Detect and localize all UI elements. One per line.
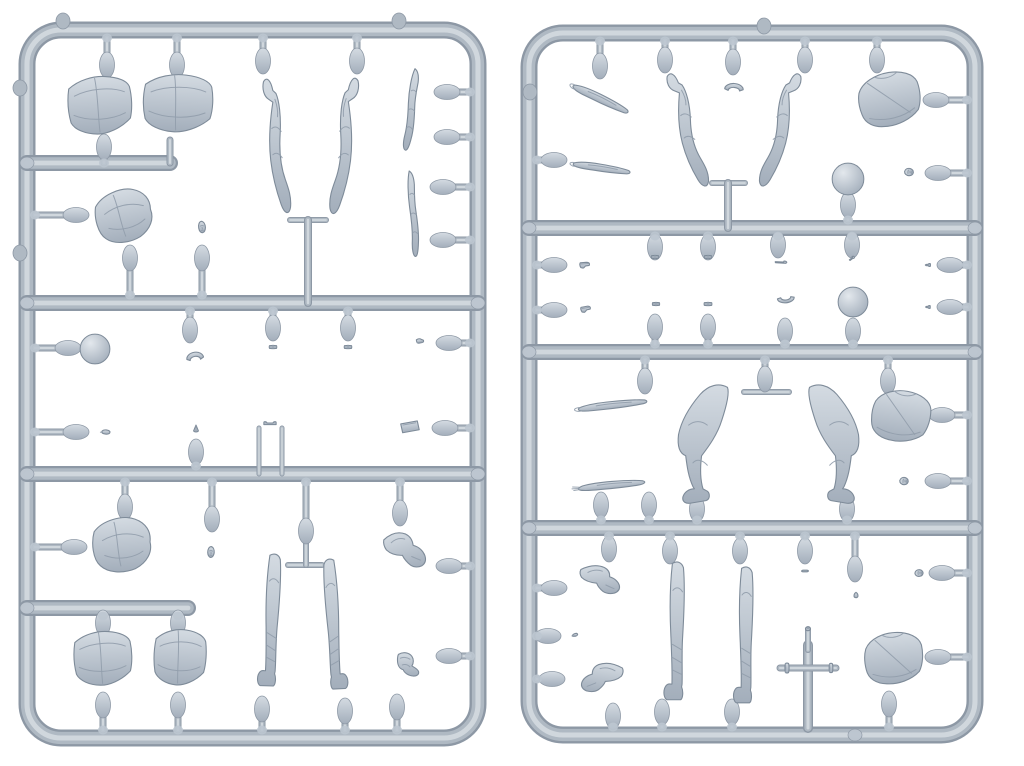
part-raised-leg-c — [666, 71, 709, 189]
part-pouch-c — [651, 255, 658, 258]
part-pouch-e — [652, 302, 659, 305]
part-map-case — [401, 421, 420, 433]
part-tent-peg — [194, 425, 199, 432]
part-pouch-d — [704, 255, 711, 258]
part-collar-crescent — [186, 351, 204, 361]
mold-tab — [757, 18, 771, 34]
part-head-e — [915, 570, 923, 577]
part-bent-arm-a — [382, 527, 427, 574]
part-tunic-torso-a — [91, 185, 157, 248]
mold-tab — [392, 13, 406, 29]
part-puttee-roll-b — [407, 171, 420, 257]
part-kneeling-leg-b — [809, 385, 859, 503]
part-pouch-f — [704, 302, 712, 305]
part-holster-b — [581, 306, 591, 313]
mold-tab — [13, 80, 27, 96]
part-greatcoat-torso — [91, 516, 152, 574]
part-chopping-arm — [568, 81, 630, 115]
part-tunic-torso-d — [862, 630, 925, 686]
part-standing-leg-b — [323, 558, 348, 689]
part-raised-leg-a — [263, 79, 291, 212]
part-toggle — [802, 570, 809, 572]
part-jacket-half-a — [67, 75, 133, 136]
part-ammo-pouch-a — [269, 345, 277, 348]
part-standing-leg-a — [257, 554, 281, 687]
part-reaching-arm — [570, 160, 631, 175]
part-bent-arm-b — [580, 564, 621, 596]
part-pick-hammer — [775, 260, 787, 264]
part-standing-leg-c — [664, 562, 684, 700]
part-helmet-dome — [80, 334, 110, 364]
part-finial-a — [925, 264, 930, 267]
mold-tab — [56, 13, 70, 29]
part-gaiter-boot — [397, 653, 418, 676]
part-tunic-torso-c — [869, 387, 934, 445]
part-bent-arm-c — [581, 660, 624, 696]
part-side-cap — [572, 633, 577, 636]
sprues-illustration — [0, 0, 1024, 766]
part-collar-horseshoe — [725, 83, 744, 91]
left-sprue — [13, 13, 485, 738]
mold-tab — [13, 245, 27, 261]
part-head-ball-b — [838, 287, 868, 317]
part-open-hand-arm — [572, 478, 645, 493]
part-jacket-half-c — [73, 631, 133, 687]
part-jacket-half-b — [142, 73, 213, 133]
part-head-c — [904, 168, 914, 177]
part-jacket-half-d — [153, 628, 208, 686]
part-tunic-torso-b — [854, 67, 926, 131]
part-finial-b — [926, 306, 931, 309]
part-wheel-b — [829, 663, 833, 672]
part-raised-leg-d — [759, 71, 802, 189]
part-standing-leg-d — [734, 567, 753, 703]
left-sprue-connectors — [20, 34, 485, 735]
part-head-ball-a — [832, 163, 864, 195]
part-ammo-pouch-b — [344, 345, 352, 348]
part-bracket-clamp — [264, 422, 276, 425]
part-head-b — [207, 546, 214, 557]
part-holster-a — [580, 262, 590, 268]
part-wheel-a — [785, 663, 789, 673]
right-sprue-parts — [568, 67, 933, 703]
part-head-a — [198, 221, 206, 233]
part-canteen — [854, 592, 858, 597]
part-puttee-roll-a — [402, 68, 420, 150]
right-sprue — [522, 18, 982, 741]
part-rolled-item — [100, 430, 110, 434]
mold-tab — [523, 84, 537, 100]
photo-canvas — [0, 0, 1024, 766]
part-raised-leg-b — [330, 78, 359, 213]
part-collar-u — [777, 296, 794, 303]
part-sleeve-arm — [574, 397, 647, 413]
part-grip-knot — [805, 627, 810, 631]
part-low-boot — [416, 338, 424, 343]
part-head-d — [899, 477, 909, 486]
part-kneeling-leg-a — [678, 385, 728, 503]
